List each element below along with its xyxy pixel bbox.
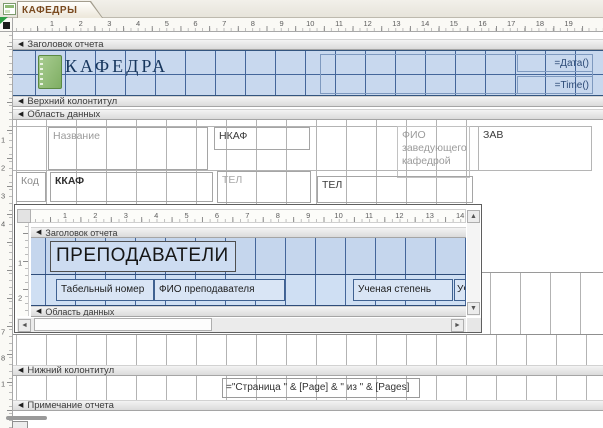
report-title-label[interactable]: КАФЕДРА [65,56,168,77]
section-selector-box[interactable] [3,22,10,29]
tab-label: КАФЕДРЫ [18,2,102,18]
subreport-horizontal-ruler[interactable]: 1234567891011121314 [31,209,466,223]
report-object-icon [3,3,16,15]
section-collapse-icon: ◀ [18,402,23,409]
column-header-tab-number[interactable]: Табельный номер [56,279,154,301]
vertical-ruler-lower-numbers: 781 [0,32,13,428]
bottom-scrollbar-thumb[interactable] [6,416,47,420]
tab-kafedry[interactable]: КАФЕДРЫ [17,1,103,18]
column-header-rank-clipped[interactable]: Уч [454,279,466,301]
subreport-section-bar-detail[interactable]: ◀ Область данных [31,306,466,317]
section-bar-detail[interactable]: ◀ Область данных [13,109,603,120]
textbox-tel[interactable]: ТЕЛ [317,176,473,203]
scroll-up-icon[interactable]: ▲ [467,210,480,223]
scroll-left-icon[interactable]: ◄ [18,319,31,332]
page-footer-area: ="Страница " & [Page] & " из " & [Pages] [13,376,603,400]
section-bar-label: Область данных [27,109,100,120]
label-kod[interactable]: Код [16,172,46,202]
scroll-down-icon[interactable]: ▼ [467,302,480,315]
subreport-vertical-scrollbar[interactable] [467,210,480,316]
grid-right-of-subreport [482,272,603,334]
textbox-nkaf[interactable]: НКАФ [214,127,310,150]
tab-bar: КАФЕДРЫ [0,0,603,18]
section-bar-page-header[interactable]: ◀ Верхний колонтитул [13,96,603,107]
section-bar-label: Заголовок отчета [27,39,103,50]
scrollbar-thumb[interactable] [34,318,212,331]
section-collapse-icon: ◀ [18,41,23,48]
page-number-textbox[interactable]: ="Страница " & [Page] & " из " & [Pages] [222,378,420,398]
section-bar-label: Примечание отчета [27,400,114,411]
column-header-degree[interactable]: Ученая степень [353,279,453,301]
horizontal-ruler[interactable]: 12345678910111213141516171819 [13,18,603,32]
subreport-window[interactable]: 1234567891011121314 12 ◀ Заголовок отчет… [14,204,482,333]
label-tel[interactable]: ТЕЛ [217,171,311,203]
section-bar-label: Заголовок отчета [45,228,117,238]
section-bar-page-footer[interactable]: ◀ Нижний колонтитул [13,365,603,376]
section-collapse-icon: ◀ [18,98,23,105]
notebook-image-control[interactable] [38,55,62,89]
subreport-title-label[interactable]: ПРЕПОДАВАТЕЛИ [50,241,236,272]
time-textbox[interactable]: =Time() [517,76,593,94]
label-fio-head[interactable]: ФИО заведующего кафедрой [397,126,470,178]
section-collapse-icon: ◀ [18,111,23,118]
subreport-vertical-ruler[interactable]: 12 [17,223,29,316]
bottom-partial-control[interactable] [12,421,28,428]
subreport-column-header-row: Табельный номер ФИО преподавателя Ученая… [31,275,466,306]
textbox-zav[interactable]: ЗАВ [478,126,592,171]
textbox-kkaf[interactable]: ККАФ [50,172,213,202]
design-surface: ◀ Заголовок отчета КАФЕДРА =Дата() =Time… [13,32,603,428]
label-name[interactable]: Название [48,127,208,170]
subreport-ruler-corner [17,209,31,223]
date-textbox[interactable]: =Дата() [517,54,593,72]
section-bar-label: Верхний колонтитул [27,96,117,107]
subreport-horizontal-scrollbar[interactable] [17,318,466,332]
grid-band [13,334,603,365]
subreport-header-area: ПРЕПОДАВАТЕЛИ [31,238,466,275]
scrollbar-corner [467,318,481,332]
subreport-section-bar-header[interactable]: ◀ Заголовок отчета [31,227,466,238]
access-report-design-view: КАФЕДРЫ 12345678910111213141516171819 12… [0,0,603,428]
section-collapse-icon: ◀ [36,229,41,236]
section-bar-report-header[interactable]: ◀ Заголовок отчета [13,39,603,50]
section-collapse-icon: ◀ [18,367,23,374]
section-bar-label: Нижний колонтитул [27,365,114,376]
section-bar-label: Область данных [45,307,114,317]
scroll-right-icon[interactable]: ► [451,319,464,332]
section-collapse-icon: ◀ [36,308,41,315]
column-header-fio[interactable]: ФИО преподавателя [154,279,285,301]
section-bar-report-footer[interactable]: ◀ Примечание отчета [13,400,603,411]
report-header-area: КАФЕДРА =Дата() =Time() [13,50,603,96]
